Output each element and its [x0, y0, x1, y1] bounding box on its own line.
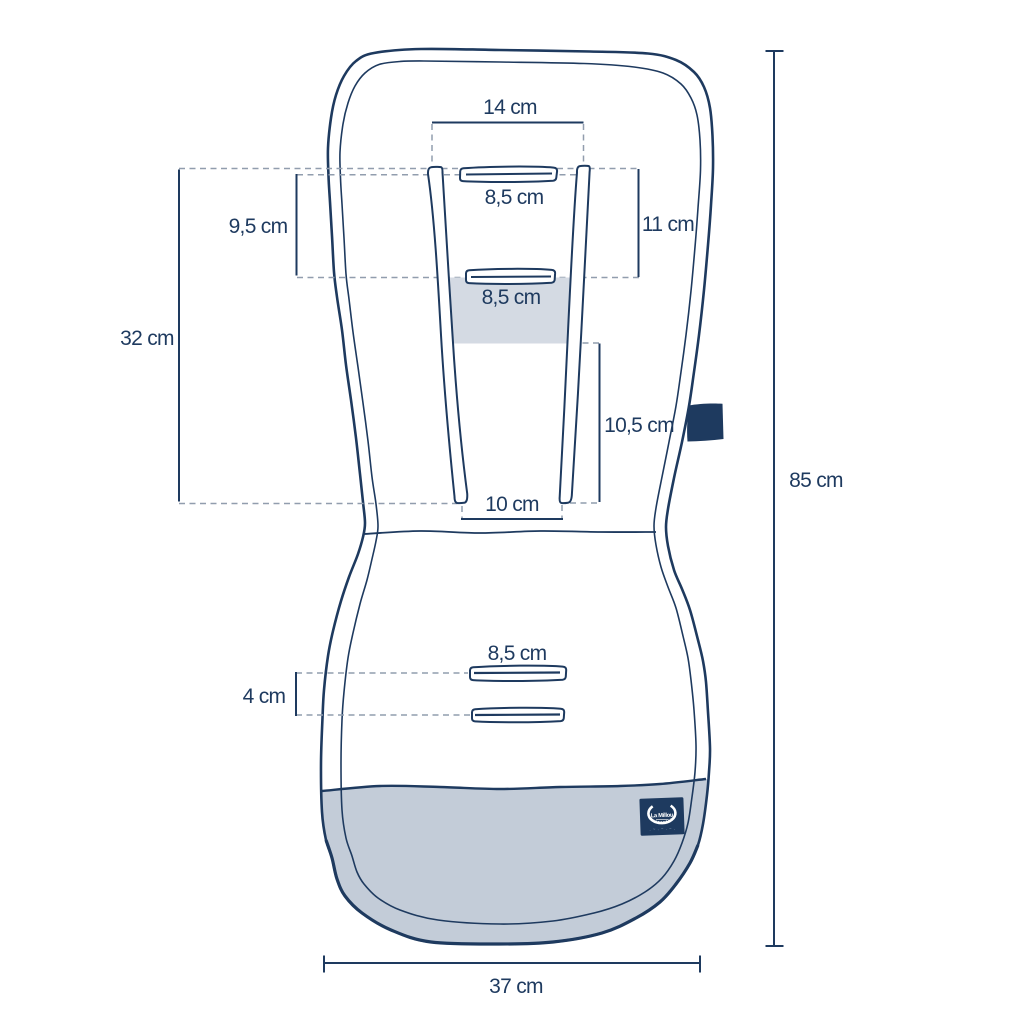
svg-text:8,5 cm: 8,5 cm: [485, 186, 544, 209]
svg-text:. ~ . ~ . ~ .: . ~ . ~ . ~ .: [649, 826, 675, 832]
svg-text:32 cm: 32 cm: [120, 327, 174, 350]
svg-text:8,5 cm: 8,5 cm: [488, 642, 547, 665]
svg-text:85 cm: 85 cm: [789, 469, 843, 492]
svg-text:4 cm: 4 cm: [243, 685, 286, 708]
svg-text:La Millou: La Millou: [651, 813, 674, 820]
svg-text:11 cm: 11 cm: [642, 213, 694, 236]
svg-text:37 cm: 37 cm: [489, 975, 543, 998]
svg-text:10 cm: 10 cm: [485, 493, 539, 516]
svg-text:10,5 cm: 10,5 cm: [604, 414, 674, 437]
svg-text:14 cm: 14 cm: [483, 96, 537, 119]
svg-text:8,5 cm: 8,5 cm: [482, 286, 541, 309]
svg-text:9,5 cm: 9,5 cm: [229, 215, 288, 238]
